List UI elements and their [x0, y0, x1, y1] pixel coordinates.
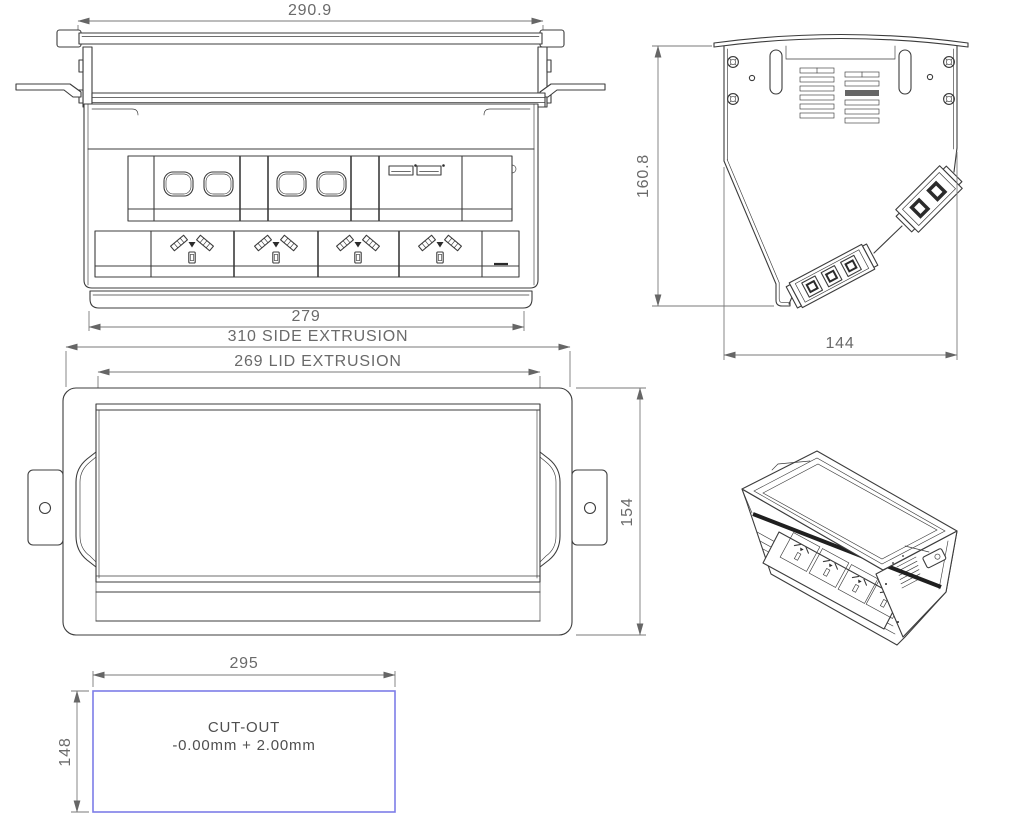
mounting-tab-left: [28, 470, 63, 545]
power-outlet-row: [95, 231, 519, 277]
side-view: 160.8 144: [635, 35, 968, 361]
dim-label-lid-width: 290.9: [288, 2, 332, 19]
drawing-sheet: 290.9: [0, 0, 1013, 819]
front-view-open: 290.9: [16, 2, 605, 331]
lid-recess: [786, 46, 895, 59]
guide-channel: [770, 50, 782, 94]
dim-label-side-extrusion: 310 SIDE EXTRUSION: [228, 328, 409, 345]
lid-plate: [57, 30, 564, 47]
bottom-tray: [90, 291, 532, 308]
dimension-295: 295: [93, 655, 395, 687]
technical-drawing-canvas: 290.9: [0, 0, 1013, 819]
av-module-row: [128, 156, 516, 221]
gpo-module-section: [893, 163, 966, 236]
pilot-hole: [749, 75, 754, 80]
dim-label-body-width: 279: [291, 308, 320, 325]
dim-label-plan-height: 154: [619, 497, 636, 526]
outlet-face-section: [785, 242, 878, 309]
hinge-bracket-left: [79, 47, 92, 107]
dimension-148: 148: [57, 691, 89, 812]
dim-label-lid-extrusion: 269 LID EXTRUSION: [234, 353, 401, 370]
screw-icon: [944, 94, 955, 105]
dimension-290-9: 290.9: [78, 2, 543, 32]
dimension-160-8: 160.8: [635, 46, 774, 306]
top-flange: [714, 35, 968, 48]
dim-label-side-height: 160.8: [635, 154, 652, 198]
dim-label-side-width: 144: [825, 335, 854, 352]
cutout-title: CUT-OUT: [208, 719, 280, 736]
cutout-tolerance: -0.00mm + 2.00mm: [172, 737, 315, 754]
dim-label-cutout-width: 295: [229, 655, 258, 672]
cutout-view: 295 148 CUT-OUT -0.00mm + 2.00mm: [57, 655, 395, 812]
guide-channel: [899, 50, 911, 94]
clamp-arm-left: [16, 84, 81, 97]
vent-slots: [800, 68, 879, 123]
pilot-hole: [927, 74, 932, 79]
screw-icon: [944, 57, 955, 68]
clamp-arm-right: [540, 84, 605, 97]
screw-icon: [728, 94, 739, 105]
mounting-tab-right: [572, 470, 607, 545]
plan-view: 310 SIDE EXTRUSION 269 LID EXTRUSION: [28, 328, 646, 635]
isometric-view: [742, 451, 957, 645]
plan-frame: [63, 388, 572, 635]
dim-label-cutout-height: 148: [57, 737, 74, 766]
screw-icon: [728, 57, 739, 68]
